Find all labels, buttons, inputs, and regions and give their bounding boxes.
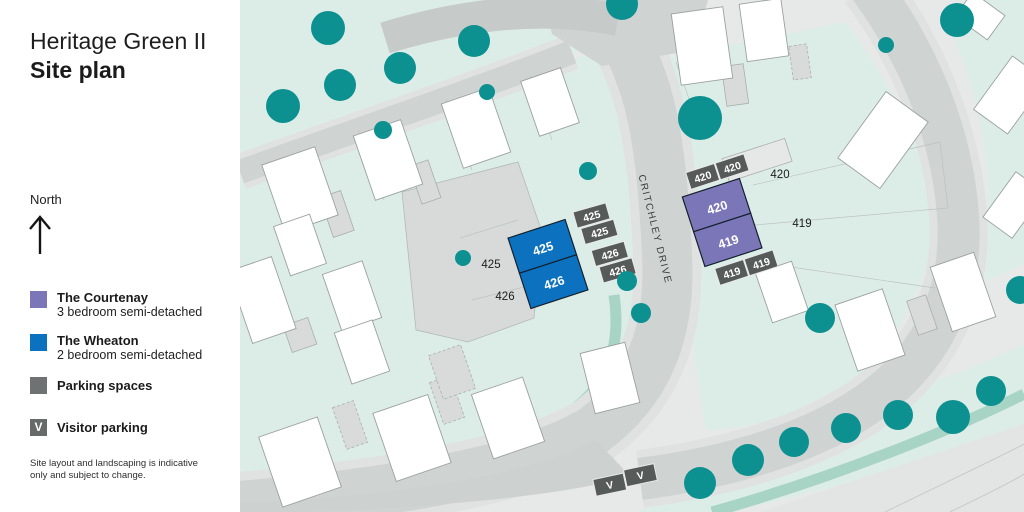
site-plan-map: 425 426 420 419 425 425 426 426 420 420 [240,0,1024,512]
tree [805,303,835,333]
tree [631,303,651,323]
tree [940,3,974,37]
tree [678,96,722,140]
parcel-label-420: 420 [770,169,789,181]
legend-desc-wheaton: 2 bedroom semi-detached [57,348,202,362]
legend-swatch-parking [30,377,47,394]
tree [779,427,809,457]
tree [311,11,345,45]
disclaimer-text: Site layout and landscaping is indicativ… [30,458,215,482]
tree [617,271,637,291]
tree [878,37,894,53]
tree [479,84,495,100]
tree [384,52,416,84]
tree [732,444,764,476]
tree [831,413,861,443]
page-subtitle: Site plan [30,55,126,85]
tree [455,250,471,266]
legend-item-courtenay: The Courtenay 3 bedroom semi-detached [30,290,230,322]
info-panel: Heritage Green II Site plan North The Co… [0,0,240,512]
legend-desc-courtenay: 3 bedroom semi-detached [57,305,202,319]
page-title: Heritage Green II [30,26,206,56]
site-plan-page: Heritage Green II Site plan North The Co… [0,0,1024,512]
tree [458,25,490,57]
legend-item-parking: Parking spaces [30,376,230,396]
legend-name-courtenay: The Courtenay [57,290,148,305]
visitor-glyph: V [34,420,42,434]
tree [579,162,597,180]
legend-swatch-visitor: V [30,419,47,436]
parcel-label-426: 426 [495,291,514,303]
legend-swatch-wheaton [30,334,47,351]
tree [684,467,716,499]
house [671,7,733,86]
tree [883,400,913,430]
legend-item-wheaton: The Wheaton 2 bedroom semi-detached [30,333,230,365]
parcel-label-425: 425 [481,259,500,271]
tree [936,400,970,434]
legend-swatch-courtenay [30,291,47,308]
north-arrow-icon [28,212,58,256]
legend-item-visitor: V Visitor parking [30,418,230,438]
tree [976,376,1006,406]
tree [266,89,300,123]
parcel-label-419: 419 [792,218,811,230]
tree [374,121,392,139]
house [739,0,789,62]
legend-name-wheaton: The Wheaton [57,333,139,348]
tree [324,69,356,101]
legend-name-visitor: Visitor parking [57,420,148,435]
legend-name-parking: Parking spaces [57,378,152,393]
north-label: North [30,192,62,207]
